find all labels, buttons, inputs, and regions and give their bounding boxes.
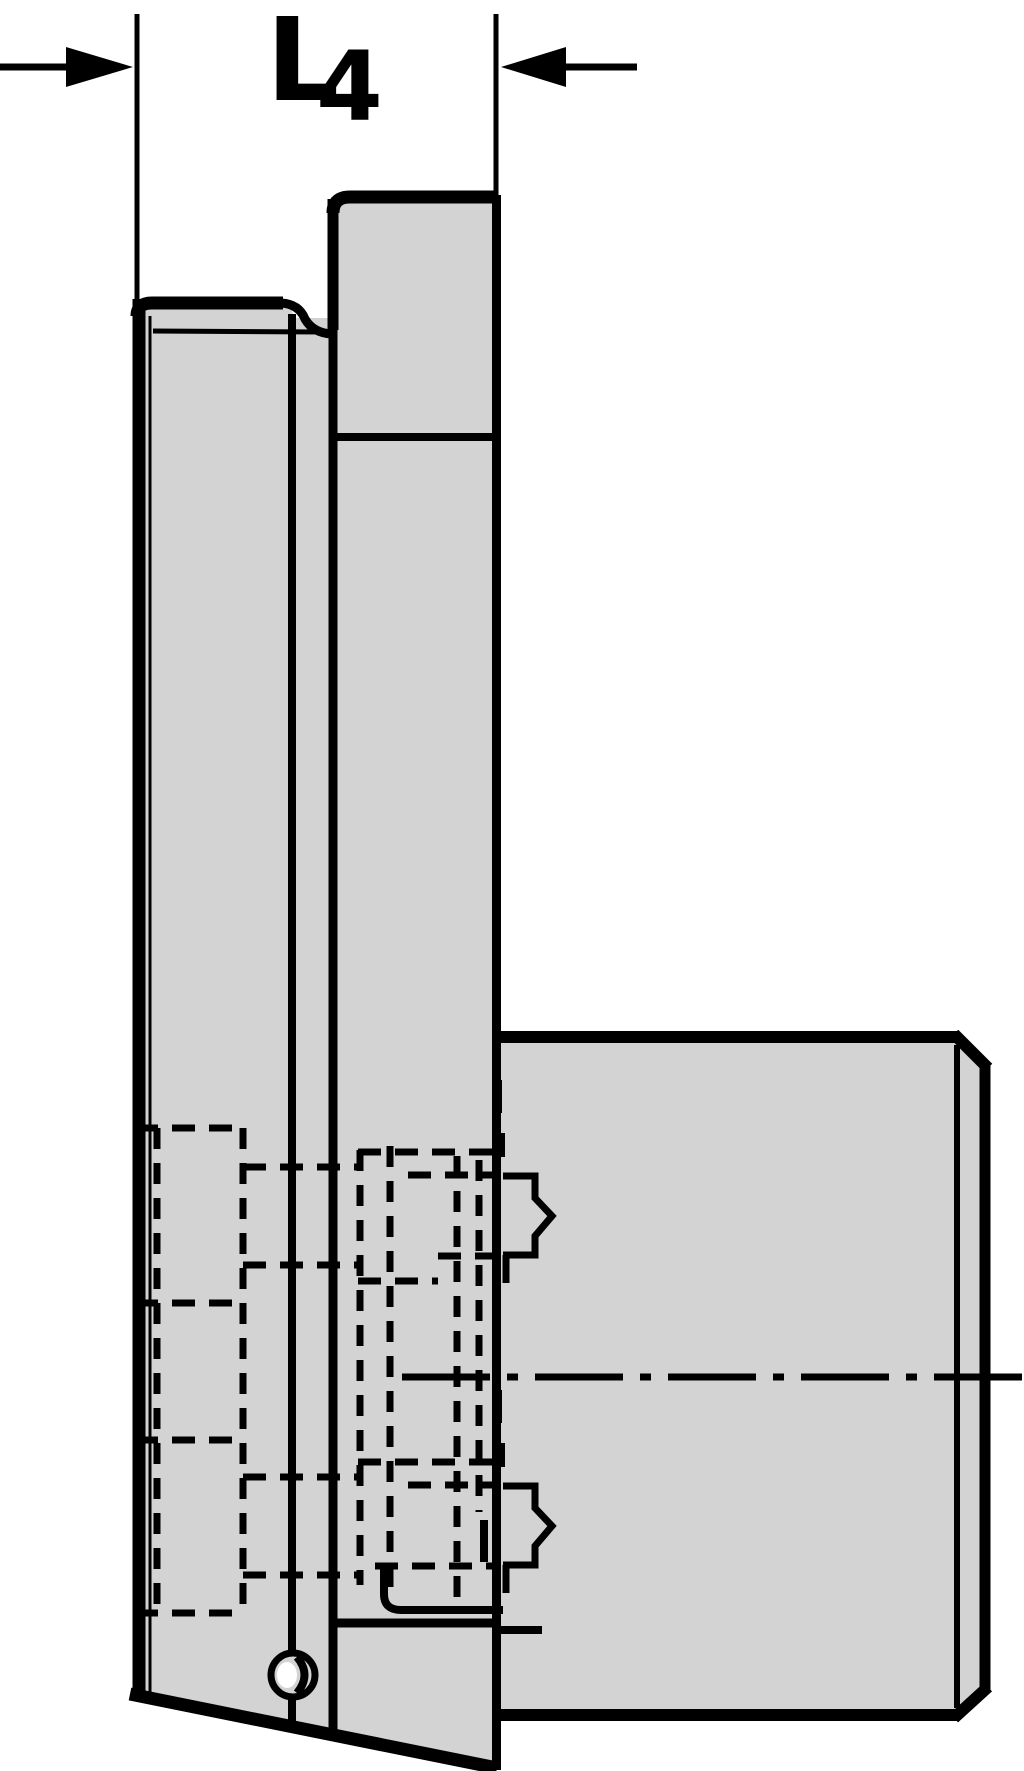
part-fill-shapes — [133, 197, 986, 1769]
technical-drawing-page: L 4 — [0, 0, 1024, 1771]
pin-highlight — [277, 1662, 297, 1688]
counterbore-mark — [495, 1443, 505, 1467]
plate-chamfer-line — [153, 331, 322, 332]
dimension-arrowhead-right — [501, 47, 566, 87]
counterbore-mark — [495, 1133, 505, 1157]
bore-chamfer-mark — [497, 1390, 502, 1423]
dimension-arrowhead-left — [66, 47, 133, 87]
bore-chamfer-mark — [497, 1080, 502, 1113]
dimension-label-subscript: 4 — [316, 31, 383, 143]
flange-column — [331, 197, 499, 1769]
dimension-annotation: L 4 — [0, 0, 637, 300]
locking-pin — [271, 1653, 315, 1697]
tool-holder-side-view-drawing: L 4 — [0, 0, 1024, 1771]
left-plate-body — [133, 300, 294, 1727]
